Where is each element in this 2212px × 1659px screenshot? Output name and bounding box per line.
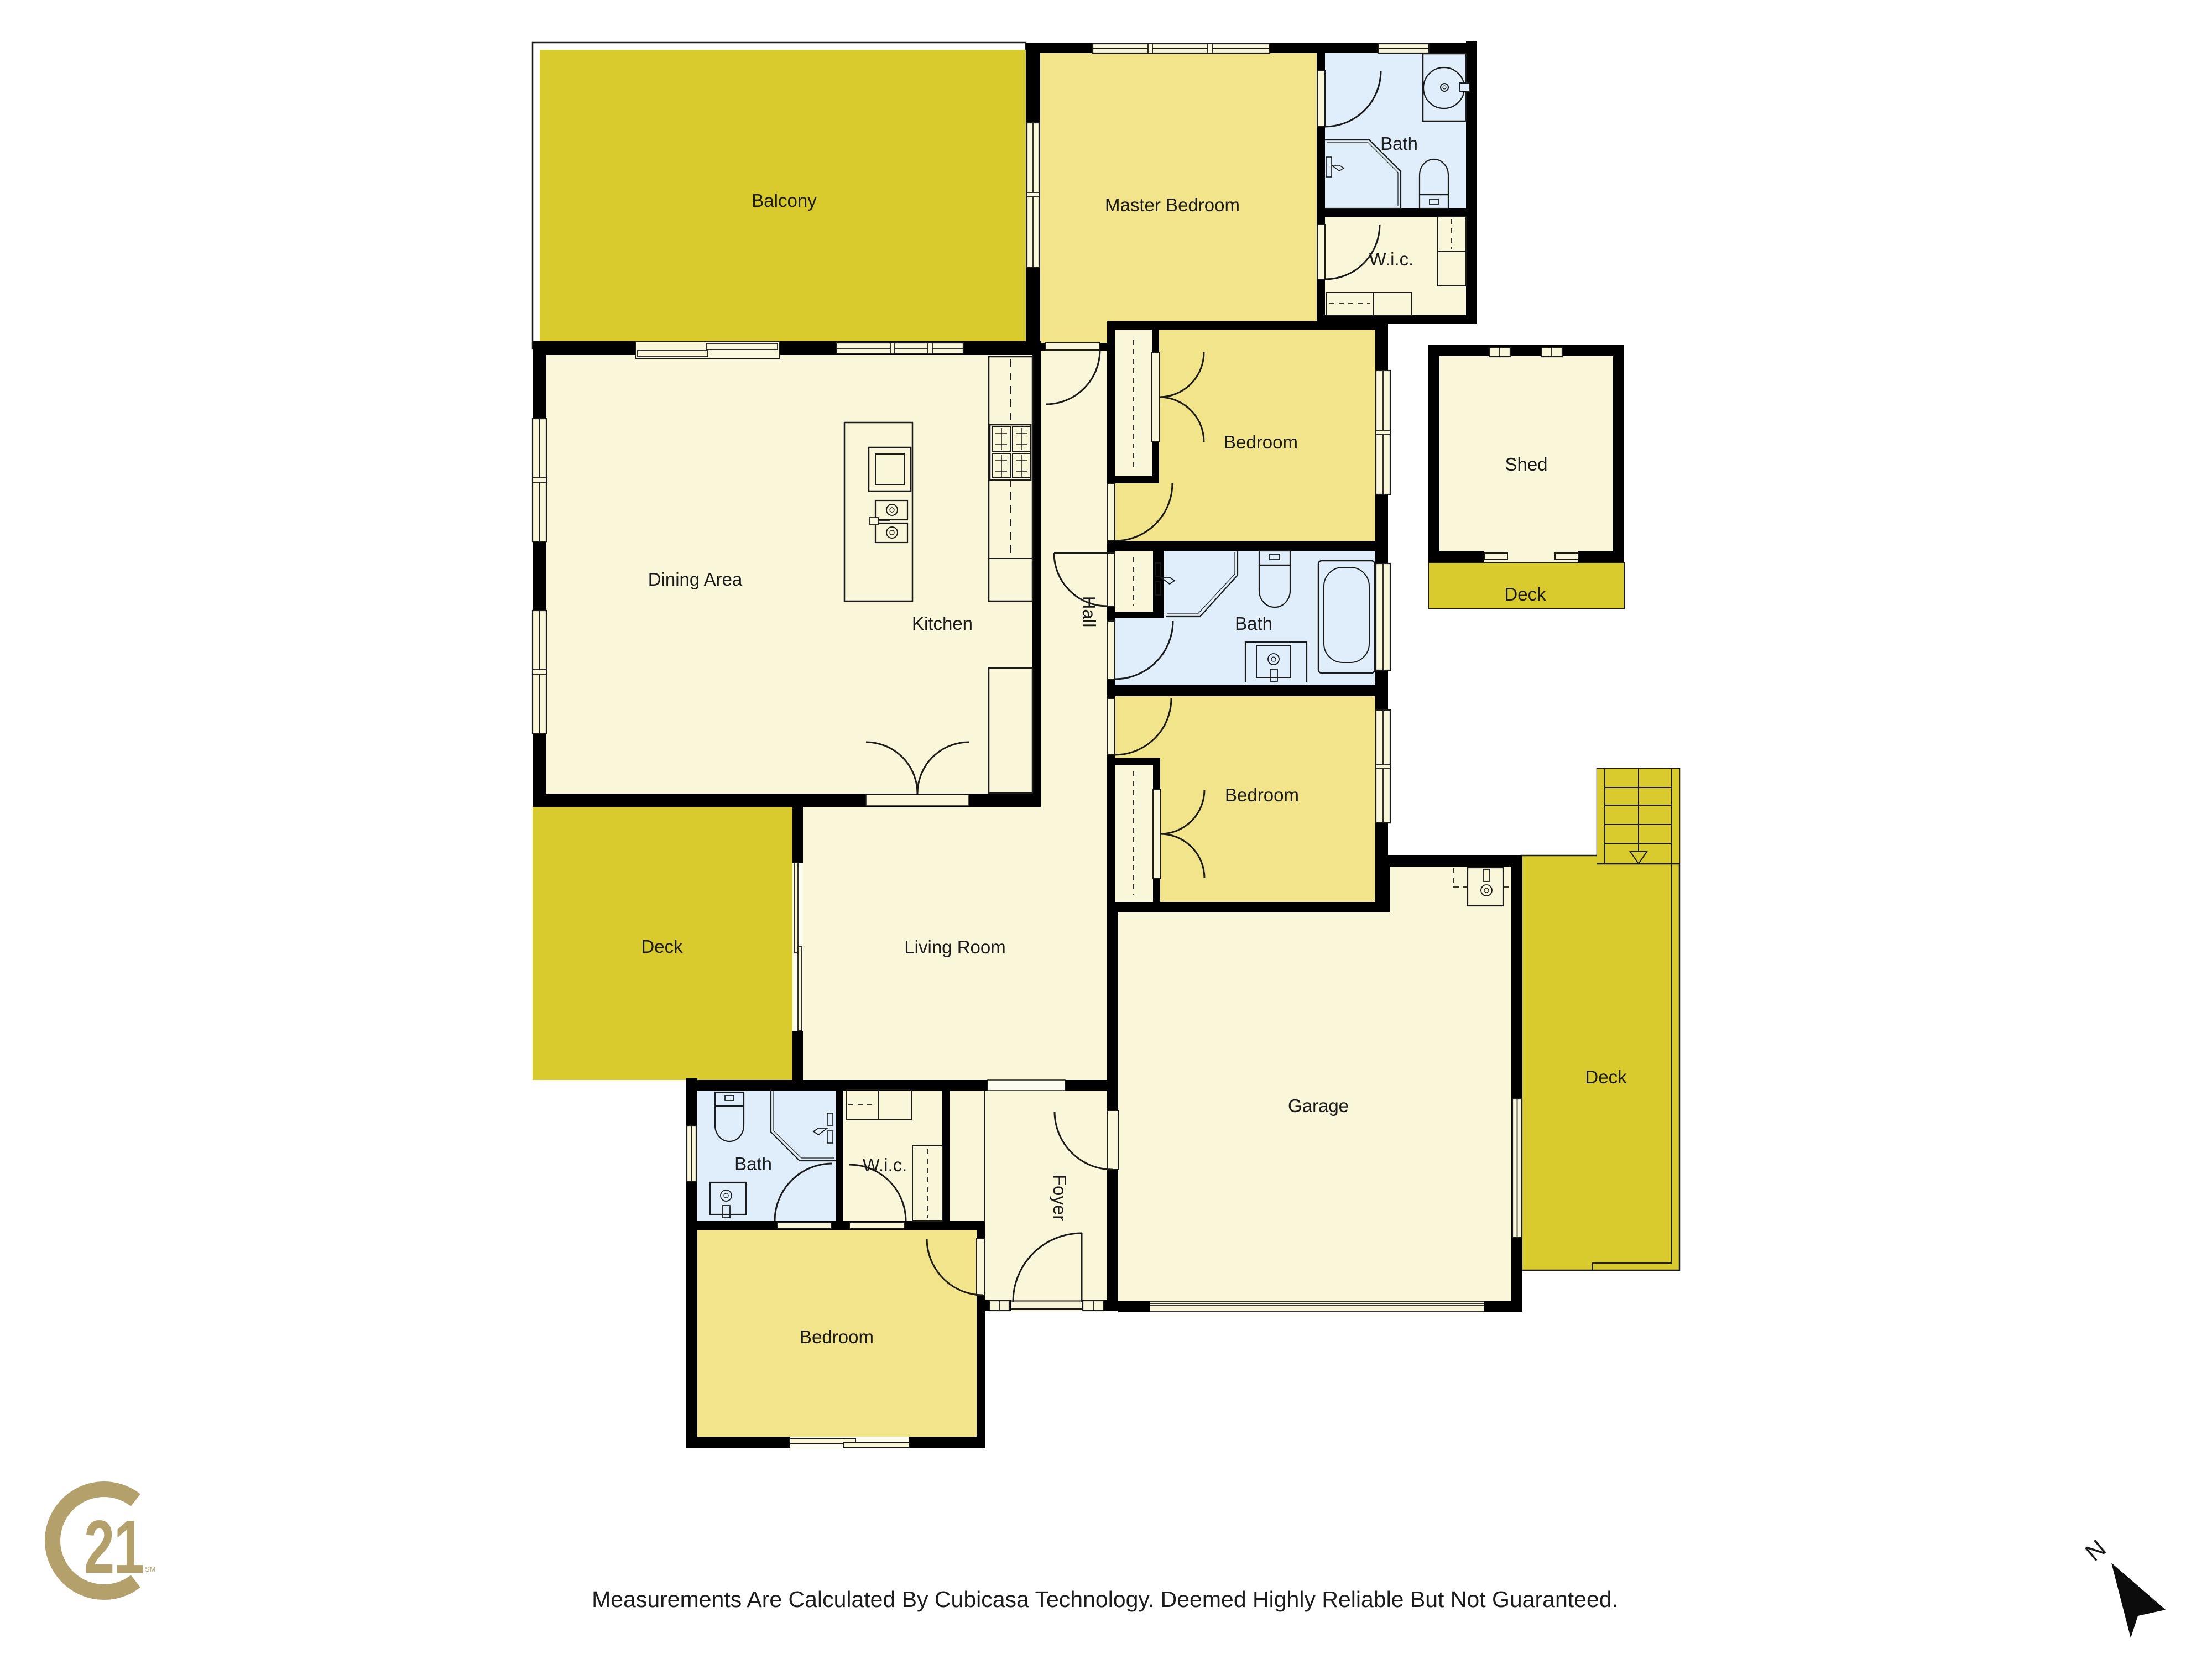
svg-text:Bedroom: Bedroom <box>1224 432 1298 452</box>
svg-text:Kitchen: Kitchen <box>912 613 973 634</box>
svg-text:Living Room: Living Room <box>904 937 1005 957</box>
svg-text:Deck: Deck <box>1585 1067 1627 1087</box>
svg-text:Shed: Shed <box>1505 454 1547 474</box>
svg-text:Bedroom: Bedroom <box>800 1327 874 1347</box>
svg-text:Foyer: Foyer <box>1050 1175 1070 1221</box>
svg-text:Master Bedroom: Master Bedroom <box>1105 195 1240 215</box>
svg-text:21: 21 <box>84 1505 143 1589</box>
svg-text:Bedroom: Bedroom <box>1225 785 1299 805</box>
svg-text:Deck: Deck <box>641 936 683 957</box>
svg-text:W.i.c.: W.i.c. <box>1369 249 1414 269</box>
svg-text:SM: SM <box>145 1565 156 1573</box>
svg-text:Bath: Bath <box>1380 133 1418 154</box>
svg-text:Garage: Garage <box>1288 1095 1349 1116</box>
svg-text:Measurements Are Calculated By: Measurements Are Calculated By Cubicasa … <box>592 1587 1618 1612</box>
svg-text:Bath: Bath <box>1235 613 1272 634</box>
svg-text:Balcony: Balcony <box>752 190 817 211</box>
svg-text:Deck: Deck <box>1504 584 1546 604</box>
svg-text:Hall: Hall <box>1079 596 1099 628</box>
svg-text:W.i.c.: W.i.c. <box>863 1155 907 1175</box>
svg-text:Bath: Bath <box>734 1154 772 1174</box>
svg-text:Dining Area: Dining Area <box>648 569 743 589</box>
